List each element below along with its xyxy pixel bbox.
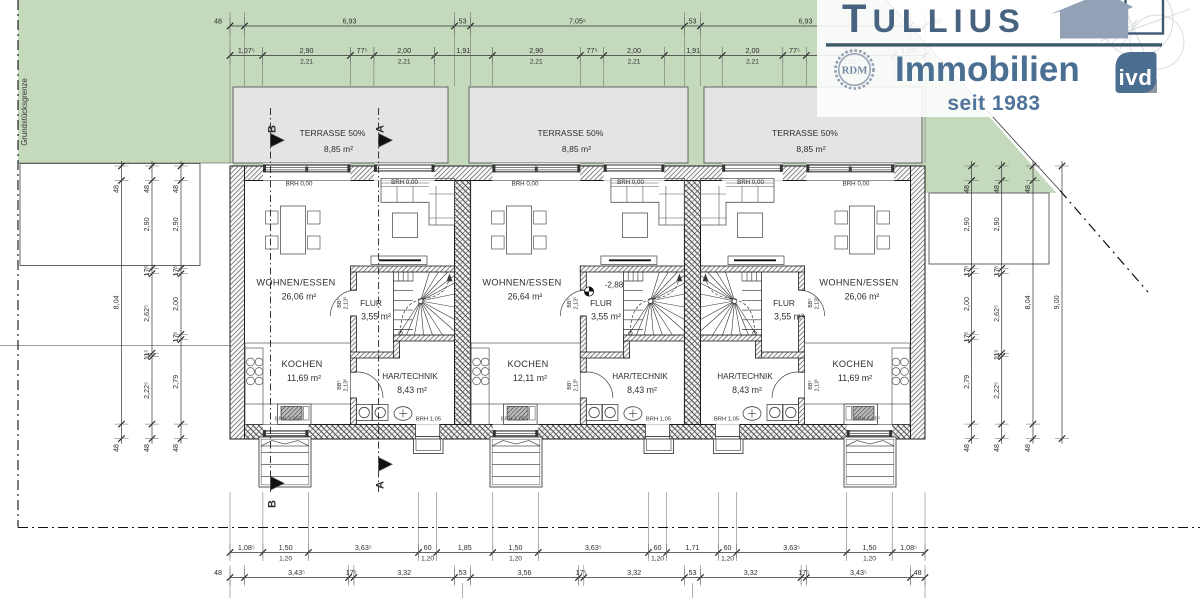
svg-text:TULLIUS: TULLIUS [842,0,1026,41]
svg-text:seit 1983: seit 1983 [947,92,1040,115]
svg-text:1,71: 1,71 [686,543,700,552]
svg-text:11,69 m²: 11,69 m² [287,373,321,383]
svg-text:53: 53 [689,16,697,25]
svg-text:BB⁵: BB⁵ [337,380,343,389]
svg-text:48: 48 [992,185,1001,193]
svg-text:B: B [267,125,279,133]
svg-text:17⁵: 17⁵ [962,265,971,276]
svg-text:A: A [375,481,387,489]
svg-text:1,50: 1,50 [509,543,523,552]
svg-text:17⁵: 17⁵ [992,265,1001,276]
svg-text:2,79: 2,79 [962,375,971,389]
svg-text:2,00: 2,00 [171,297,180,311]
svg-text:BRH 0,00: BRH 0,00 [843,181,870,188]
svg-text:BRH 1,05: BRH 1,05 [646,417,671,423]
svg-text:77⁵: 77⁵ [789,46,800,55]
svg-text:BB⁵: BB⁵ [567,380,573,389]
svg-text:KOCHEN: KOCHEN [281,359,322,369]
svg-text:7,05⁵: 7,05⁵ [569,16,586,25]
svg-text:26,06 m²: 26,06 m² [845,292,880,302]
svg-text:HAR/TECHNIK: HAR/TECHNIK [717,372,773,381]
svg-text:77⁵: 77⁵ [587,46,598,55]
svg-text:BRH 0,00: BRH 0,00 [391,179,418,186]
svg-text:WOHNEN/ESSEN: WOHNEN/ESSEN [256,278,335,288]
svg-text:3,43⁵: 3,43⁵ [288,568,305,577]
svg-text:1,50: 1,50 [863,543,877,552]
svg-text:HAR/TECHNIK: HAR/TECHNIK [612,372,668,381]
svg-text:1,08⁵: 1,08⁵ [900,543,917,552]
svg-text:2,13⁵: 2,13⁵ [574,297,580,310]
svg-text:3,32: 3,32 [627,568,641,577]
svg-text:2,13⁵: 2,13⁵ [815,297,821,310]
svg-text:2,90: 2,90 [171,217,180,231]
svg-text:11⁵: 11⁵ [992,350,1001,360]
svg-text:BRH 1,05: BRH 1,05 [714,417,739,423]
svg-text:48: 48 [1023,185,1032,193]
svg-text:17⁵: 17⁵ [346,568,357,577]
svg-text:48: 48 [214,568,222,577]
svg-text:2,21: 2,21 [530,59,543,66]
svg-text:2,22⁵: 2,22⁵ [142,382,151,399]
svg-text:ivd: ivd [1119,65,1153,90]
svg-text:1,20: 1,20 [279,556,292,563]
svg-text:11⁵: 11⁵ [142,350,151,360]
svg-text:53: 53 [459,568,467,577]
svg-text:WOHNEN/ESSEN: WOHNEN/ESSEN [819,278,898,288]
svg-text:48: 48 [112,185,121,193]
svg-text:53: 53 [689,568,697,577]
svg-text:1,20: 1,20 [421,556,434,563]
svg-text:3,43⁵: 3,43⁵ [850,568,867,577]
svg-text:BRH 0,00: BRH 0,00 [737,179,764,186]
svg-text:48: 48 [112,444,121,452]
svg-text:BB⁵: BB⁵ [808,380,814,389]
svg-text:60: 60 [654,543,662,552]
svg-text:8,85 m²: 8,85 m² [562,144,591,154]
svg-text:1,08⁵: 1,08⁵ [238,543,255,552]
svg-text:48: 48 [142,444,151,452]
svg-text:A: A [375,125,387,133]
svg-text:BRH 0,00: BRH 0,00 [512,181,539,188]
svg-text:KOCHEN: KOCHEN [832,359,873,369]
svg-text:2,13⁵: 2,13⁵ [574,379,580,392]
svg-text:TERRASSE 50%: TERRASSE 50% [300,128,366,138]
svg-text:FLUR: FLUR [590,298,612,308]
svg-text:17⁵: 17⁵ [171,331,180,342]
svg-text:RDM: RDM [842,65,868,77]
svg-text:2,79: 2,79 [171,375,180,389]
svg-text:8,04: 8,04 [1023,295,1032,309]
svg-text:8,43 m²: 8,43 m² [627,385,657,395]
svg-text:48: 48 [992,444,1001,452]
svg-text:8,85 m²: 8,85 m² [796,144,825,154]
svg-text:-2,88: -2,88 [605,280,624,289]
svg-text:48: 48 [962,444,971,452]
svg-text:12,11 m²: 12,11 m² [513,373,547,383]
svg-text:48: 48 [214,16,222,25]
svg-text:1,91: 1,91 [686,46,700,55]
svg-text:11,69 m²: 11,69 m² [838,373,872,383]
svg-text:17⁵: 17⁵ [171,265,180,276]
svg-text:48: 48 [171,185,180,193]
svg-text:BRH 1,05: BRH 1,05 [416,417,441,423]
svg-text:8,43 m²: 8,43 m² [397,385,427,395]
svg-text:48: 48 [962,185,971,193]
svg-text:1,20: 1,20 [651,556,664,563]
svg-text:KOCHEN: KOCHEN [507,359,548,369]
svg-text:48: 48 [1023,444,1032,452]
svg-text:BRH 1,05⁵: BRH 1,05⁵ [501,416,528,423]
svg-text:77⁵: 77⁵ [357,46,368,55]
svg-text:2,90: 2,90 [962,217,971,231]
svg-text:1,85: 1,85 [458,543,472,552]
svg-text:2,90: 2,90 [992,217,1001,231]
svg-text:2,90: 2,90 [529,46,543,55]
svg-text:26,64 m²: 26,64 m² [508,292,543,302]
svg-text:1,50: 1,50 [279,543,293,552]
svg-text:26,06 m²: 26,06 m² [282,292,317,302]
svg-text:3,55 m²: 3,55 m² [591,312,621,322]
svg-text:2,13⁵: 2,13⁵ [344,297,350,310]
svg-text:2,00: 2,00 [397,46,411,55]
svg-text:2,62⁵: 2,62⁵ [142,305,151,322]
svg-text:9,00: 9,00 [1052,295,1061,309]
svg-text:2,21: 2,21 [746,59,759,66]
svg-text:BB⁵: BB⁵ [337,298,343,307]
svg-text:48: 48 [142,185,151,193]
svg-text:8,04: 8,04 [112,295,121,309]
svg-text:2,00: 2,00 [627,46,641,55]
svg-text:17⁵: 17⁵ [142,265,151,276]
svg-text:2,21: 2,21 [628,59,641,66]
svg-text:60: 60 [424,543,432,552]
svg-text:2,00: 2,00 [746,46,760,55]
svg-text:3,32: 3,32 [744,568,758,577]
svg-text:BRH 1,05⁵: BRH 1,05⁵ [275,416,302,423]
svg-text:1,20: 1,20 [721,556,734,563]
svg-text:B: B [267,500,279,508]
svg-text:TERRASSE 50%: TERRASSE 50% [772,128,838,138]
svg-text:6,93: 6,93 [343,16,357,25]
svg-text:3,63⁵: 3,63⁵ [355,543,372,552]
svg-text:60: 60 [724,543,732,552]
svg-text:6,93: 6,93 [799,16,813,25]
svg-text:8,85 m²: 8,85 m² [324,144,353,154]
svg-text:WOHNEN/ESSEN: WOHNEN/ESSEN [482,278,561,288]
svg-text:1,91: 1,91 [456,46,470,55]
svg-text:HAR/TECHNIK: HAR/TECHNIK [382,372,438,381]
svg-text:3,55 m²: 3,55 m² [774,312,804,322]
svg-text:BRH 1,05⁵: BRH 1,05⁵ [854,416,881,423]
svg-text:TERRASSE 50%: TERRASSE 50% [538,128,604,138]
svg-text:BRH 0,00: BRH 0,00 [617,179,644,186]
svg-text:2,13⁵: 2,13⁵ [815,379,821,392]
svg-text:3,56: 3,56 [518,568,532,577]
svg-text:53: 53 [459,16,467,25]
svg-text:1,20: 1,20 [509,556,522,563]
svg-text:3,55 m²: 3,55 m² [361,312,391,322]
svg-text:2,62⁵: 2,62⁵ [992,305,1001,322]
svg-text:2,13⁵: 2,13⁵ [344,379,350,392]
svg-text:8,43 m²: 8,43 m² [732,385,762,395]
svg-text:3,63⁵: 3,63⁵ [585,543,602,552]
svg-text:2,90: 2,90 [300,46,314,55]
svg-text:48: 48 [914,568,922,577]
svg-text:17⁵: 17⁵ [798,568,809,577]
svg-text:FLUR: FLUR [773,298,795,308]
svg-text:2,00: 2,00 [962,297,971,311]
svg-text:2,21: 2,21 [398,59,411,66]
svg-text:48: 48 [171,444,180,452]
svg-text:1,07⁵: 1,07⁵ [238,46,255,55]
svg-text:17⁵: 17⁵ [576,568,587,577]
svg-text:3,63⁵: 3,63⁵ [783,543,800,552]
svg-text:2,90: 2,90 [142,217,151,231]
svg-text:2,22⁵: 2,22⁵ [992,382,1001,399]
svg-text:3,32: 3,32 [397,568,411,577]
svg-text:BB⁵: BB⁵ [808,298,814,307]
svg-text:Grundstücksgrenze: Grundstücksgrenze [20,78,29,146]
svg-text:BB⁵: BB⁵ [567,298,573,307]
svg-text:17⁵: 17⁵ [962,331,971,342]
svg-text:1,20: 1,20 [863,556,876,563]
svg-text:2,21: 2,21 [300,59,313,66]
svg-text:Immobilien: Immobilien [895,50,1080,89]
svg-text:BRH 0,00: BRH 0,00 [286,181,313,188]
